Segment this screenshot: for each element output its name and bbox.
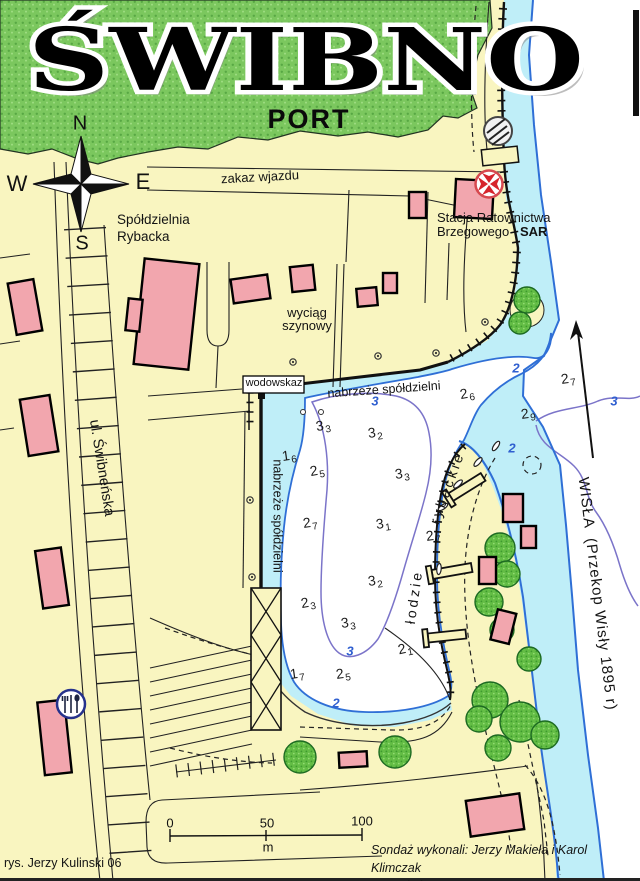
- depth-marker: 25: [309, 461, 326, 479]
- edge-mark: [633, 10, 639, 116]
- depth-marker: 23: [300, 593, 317, 611]
- contour-label: 2: [332, 696, 339, 711]
- label-sar-bold: SAR: [520, 225, 547, 239]
- label-sar-line2: Brzegowego: [437, 225, 509, 239]
- compass-e: E: [136, 169, 151, 195]
- compass-w: W: [7, 171, 28, 197]
- sar-cross-icon: [476, 171, 503, 198]
- credit-survey-line2: Wrzesień 2006: [371, 877, 640, 881]
- label-nabrzeze-west: nabrzeże spółdzielni: [270, 459, 283, 572]
- depth-marker: 27: [560, 369, 576, 387]
- contour-label: 2: [512, 361, 519, 376]
- label-spoldzielnia-line2: Rybacka: [117, 230, 170, 244]
- scale-tick-100: 100: [351, 814, 373, 829]
- compass-n: N: [73, 113, 87, 136]
- credit-survey-line1: Sondaż wykonali: Jerzy Makieła i Karol K…: [371, 841, 640, 877]
- ferry-landing: [481, 146, 518, 166]
- label-wyciag-line2: szynowy: [282, 319, 332, 333]
- credit-author: rys. Jerzy Kulinski 06: [4, 856, 121, 870]
- depth-marker: 33: [394, 464, 410, 482]
- compass-s: S: [75, 233, 88, 256]
- depth-marker: 27: [302, 513, 318, 531]
- scale-unit: m: [263, 840, 274, 855]
- depth-marker: 21: [396, 639, 413, 658]
- contour-label: 2: [508, 441, 515, 456]
- restaurant-icon: [57, 690, 85, 718]
- depth-marker: 33: [315, 416, 332, 434]
- contour-label: 3: [610, 394, 617, 409]
- scale-tick-50: 50: [260, 816, 274, 831]
- label-spoldzielnia-line1: Spółdzielnia: [117, 213, 190, 227]
- label-sar-line1: Stacja Ratownictwa: [437, 211, 550, 225]
- depth-marker: 29: [520, 404, 536, 422]
- slipway: [251, 588, 281, 730]
- depth-marker: 33: [340, 613, 356, 631]
- contour-label: 3: [371, 394, 378, 409]
- depth-marker: 32: [367, 571, 383, 589]
- ferry-icon: [484, 117, 512, 145]
- depth-marker: 26: [459, 384, 476, 402]
- depth-marker: 16: [281, 446, 297, 464]
- depth-marker: 27: [425, 526, 441, 544]
- scale-tick-0: 0: [166, 816, 173, 831]
- subtitle-port: PORT: [267, 104, 350, 134]
- page-title: ŚWIBNO ŚWIBNO ŚWIBNO: [28, 9, 589, 116]
- credit-survey: Sondaż wykonali: Jerzy Makieła i Karol K…: [371, 841, 640, 881]
- depth-marker: 31: [375, 514, 391, 532]
- port-map: ŚWIBNO ŚWIBNO ŚWIBNO PORT N W E S 0 50 1…: [0, 0, 640, 881]
- water-gauge: [258, 393, 265, 399]
- depth-marker: 17: [289, 664, 305, 682]
- label-wodowskaz: wodowskaz: [246, 378, 303, 390]
- title-text: ŚWIBNO: [28, 9, 584, 111]
- depth-marker: 25: [335, 664, 351, 682]
- contour-label: 3: [346, 644, 353, 659]
- depth-marker: 32: [367, 423, 383, 441]
